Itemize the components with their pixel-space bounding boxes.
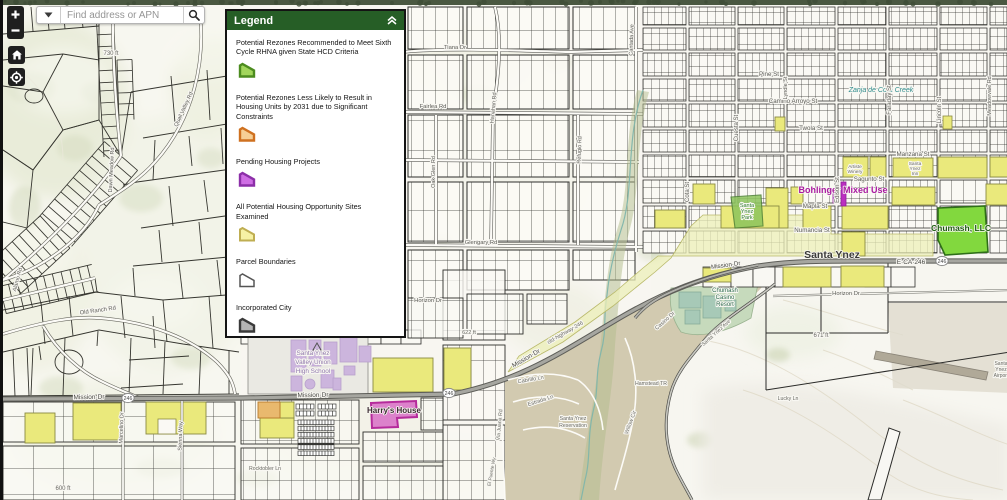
svg-text:Hamstead TR: Hamstead TR — [635, 381, 667, 387]
svg-text:Airport: Airport — [994, 373, 1007, 379]
svg-text:Glengary Rd: Glengary Rd — [465, 240, 498, 246]
svg-text:Edison St: Edison St — [835, 177, 841, 203]
svg-text:Manzana St: Manzana St — [896, 151, 929, 158]
svg-text:Cota St: Cota St — [685, 182, 691, 202]
svg-text:671 ft: 671 ft — [813, 333, 828, 339]
svg-text:Oak Glen Rd: Oak Glen Rd — [431, 156, 437, 188]
svg-text:246: 246 — [124, 396, 133, 402]
svg-text:Resort: Resort — [716, 302, 734, 308]
svg-text:Cuesta St: Cuesta St — [734, 115, 740, 142]
svg-text:Chumash: Chumash — [712, 288, 738, 294]
svg-text:Park: Park — [741, 215, 753, 221]
svg-text:Santa Ynez: Santa Ynez — [560, 416, 587, 422]
svg-text:Reservation: Reservation — [559, 423, 587, 429]
svg-text:Refugio Rd: Refugio Rd — [577, 136, 584, 164]
svg-text:Sagunto St: Sagunto St — [854, 176, 885, 183]
svg-text:Winery: Winery — [848, 169, 864, 175]
svg-text:Camino Arroyo St: Camino Arroyo St — [769, 98, 818, 105]
svg-text:622 ft: 622 ft — [462, 330, 476, 336]
svg-text:730 ft: 730 ft — [103, 51, 118, 57]
svg-text:High School: High School — [296, 368, 330, 375]
svg-text:Horizon Dr: Horizon Dr — [414, 298, 442, 304]
svg-text:Twola St: Twola St — [799, 125, 823, 132]
svg-text:Santa Ynez: Santa Ynez — [297, 350, 330, 357]
svg-text:600 ft: 600 ft — [55, 486, 70, 492]
svg-text:Cantada Ave: Cantada Ave — [628, 24, 635, 56]
svg-text:Numancia St: Numancia St — [794, 227, 830, 234]
svg-text:Pine St: Pine St — [759, 71, 779, 78]
svg-text:Horizon Dr: Horizon Dr — [832, 291, 860, 297]
svg-text:Casino: Casino — [716, 295, 735, 301]
svg-text:Faraday St: Faraday St — [887, 85, 893, 115]
svg-text:246: 246 — [938, 259, 947, 265]
svg-text:Tiana Dr: Tiana Dr — [444, 45, 466, 51]
svg-text:Inn: Inn — [912, 171, 919, 177]
svg-text:Marcelino Dr: Marcelino Dr — [118, 412, 125, 444]
svg-text:Chumash, LLC: Chumash, LLC — [931, 223, 991, 233]
svg-text:Mapla St: Mapla St — [803, 203, 828, 210]
svg-text:Bohlinger Mixed Use: Bohlinger Mixed Use — [798, 185, 887, 195]
svg-text:Mission·Dr: Mission·Dr — [73, 394, 105, 402]
svg-text:Zanja de Cota Creek: Zanja de Cota Creek — [848, 87, 914, 94]
svg-text:Santa Ynez: Santa Ynez — [804, 249, 860, 261]
svg-text:246: 246 — [445, 391, 454, 397]
svg-text:Rocktobler Ln: Rocktobler Ln — [249, 466, 281, 472]
svg-text:Meadowvale Rd: Meadowvale Rd — [987, 76, 993, 115]
svg-text:Lincoln St: Lincoln St — [937, 96, 943, 123]
svg-text:Mission·Dr: Mission·Dr — [297, 392, 329, 400]
svg-text:E·CA·246: E·CA·246 — [897, 259, 926, 266]
svg-text:Sienna Way: Sienna Way — [177, 421, 184, 451]
svg-text:Lyndle St: Lyndle St — [783, 76, 789, 99]
svg-text:Valley Union: Valley Union — [295, 359, 331, 366]
svg-text:Fairlea Rd: Fairlea Rd — [420, 104, 447, 110]
svg-text:Lucky Ln: Lucky Ln — [778, 396, 799, 402]
svg-text:Harry's House: Harry's House — [367, 406, 421, 415]
